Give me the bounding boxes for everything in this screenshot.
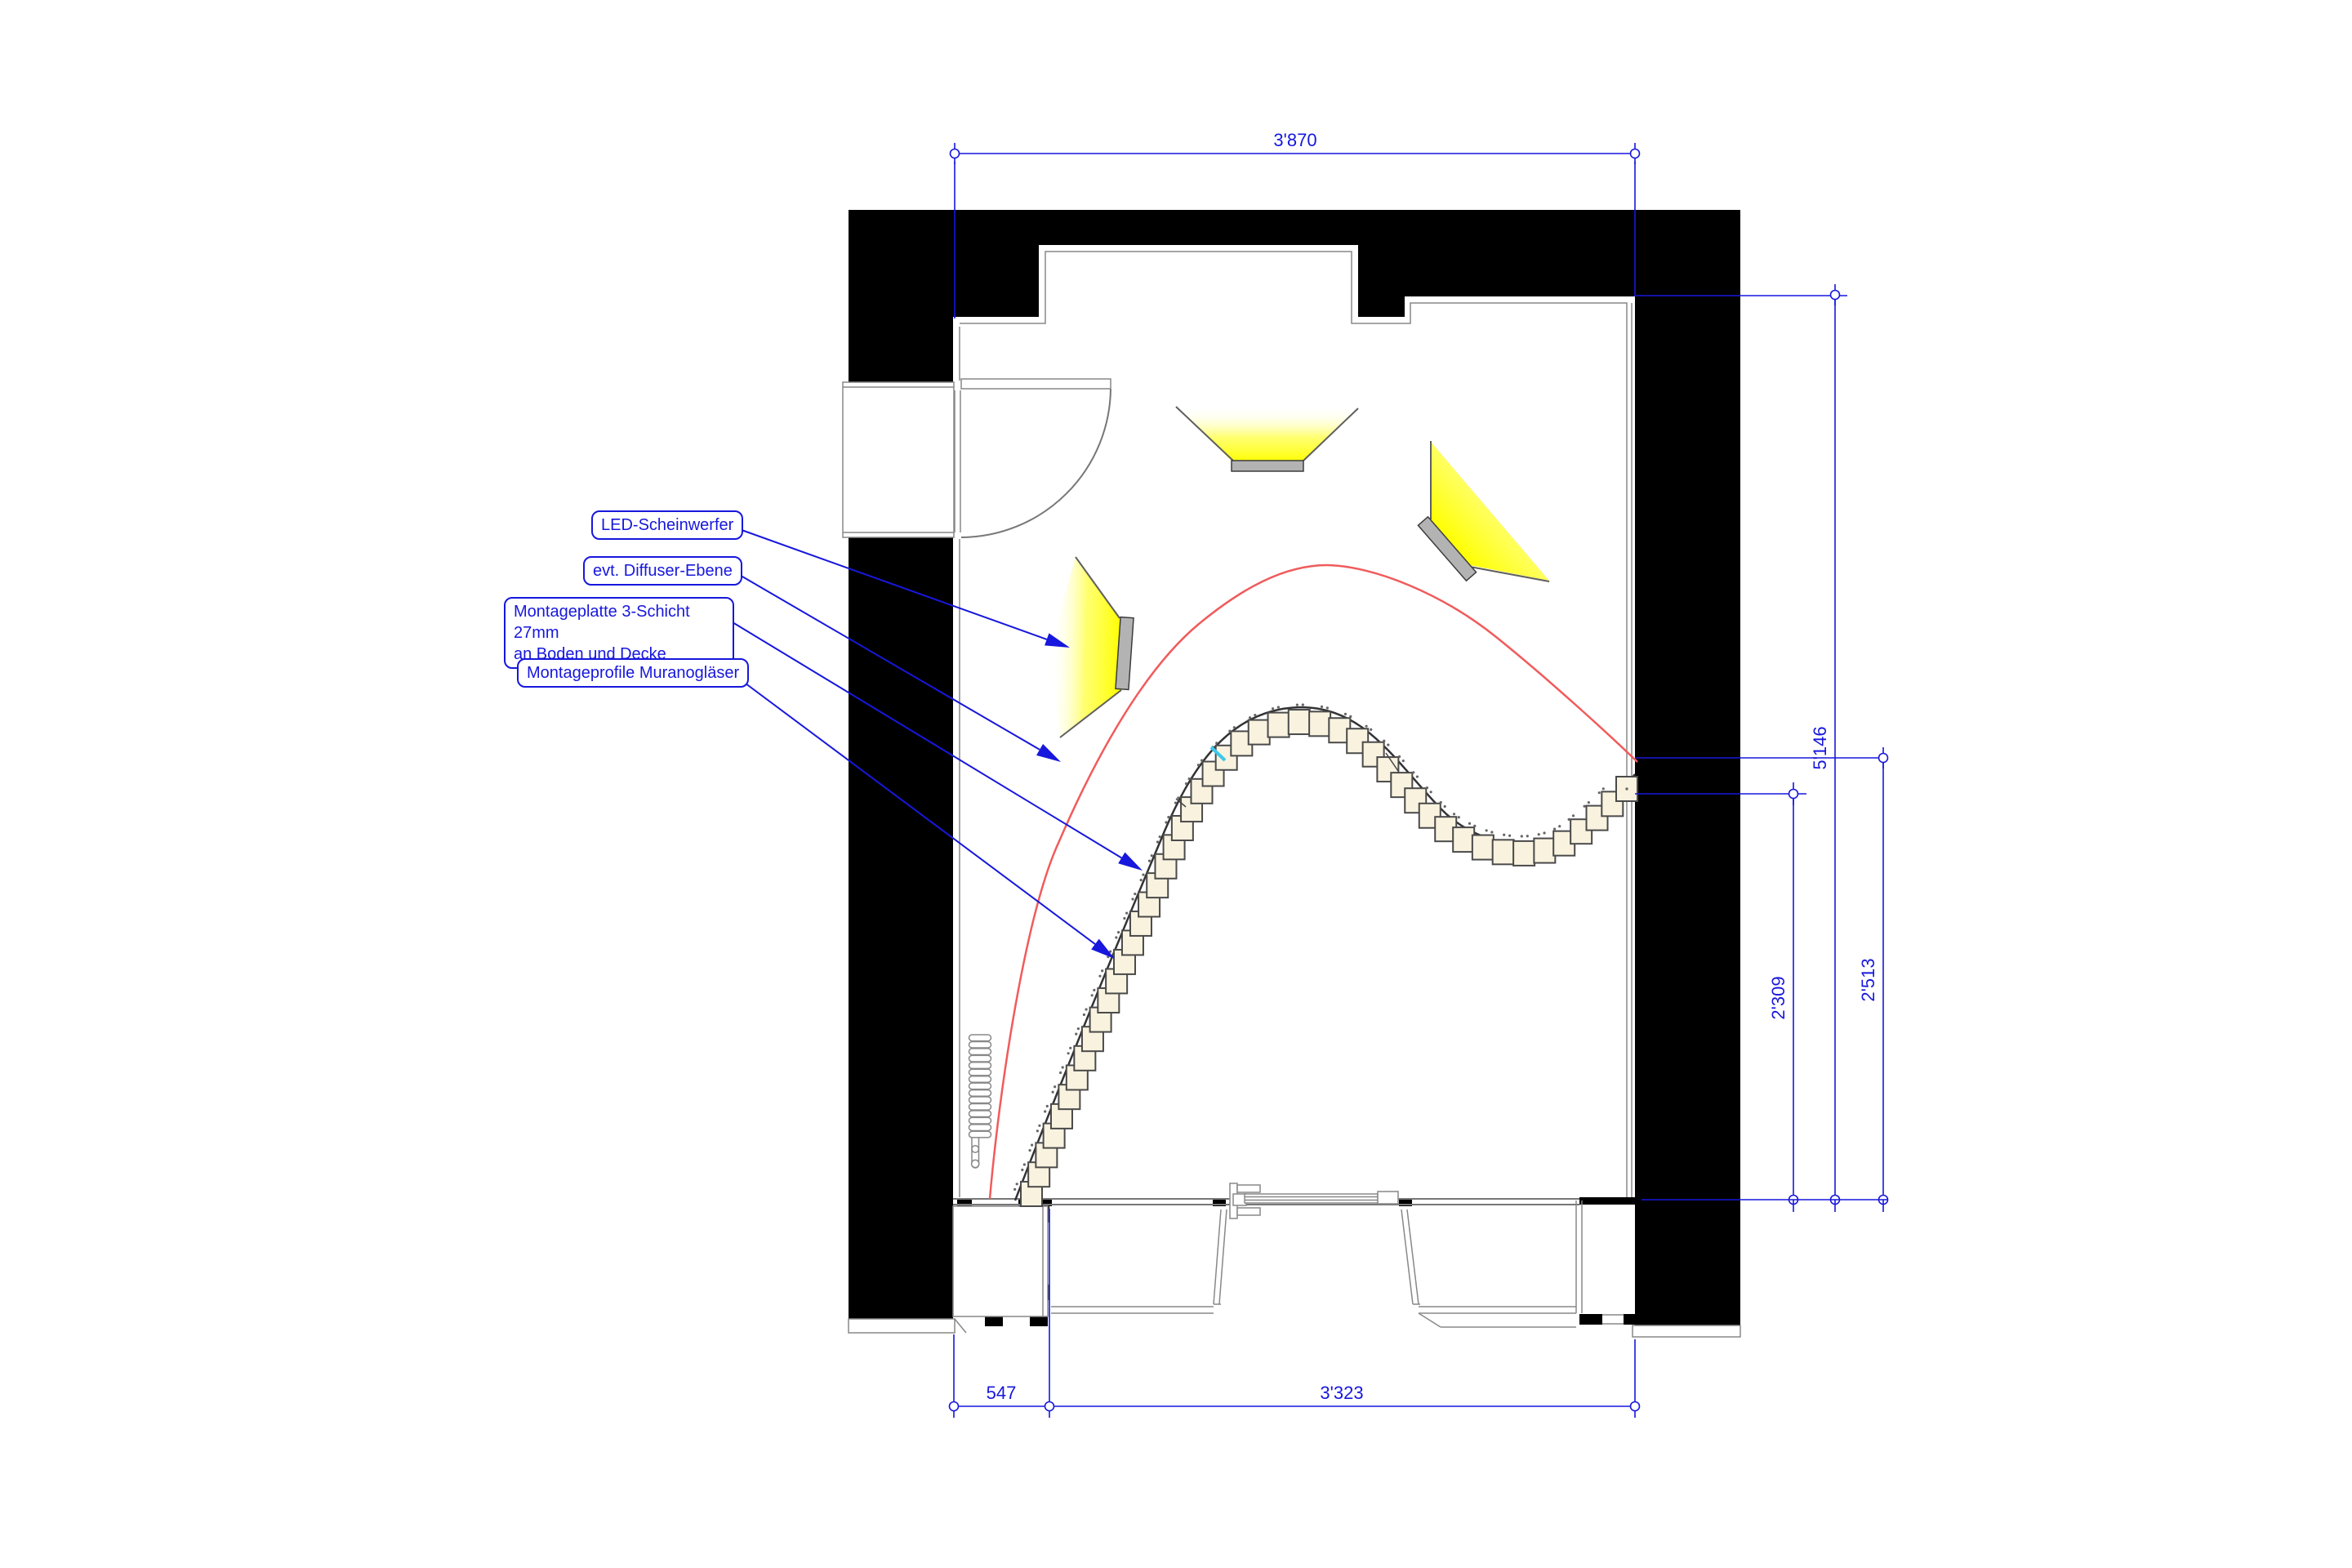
radiator-fin xyxy=(969,1125,991,1131)
label-montageplatte-line1: Montageplatte 3-Schicht 27mm xyxy=(514,603,690,642)
radiator-fin xyxy=(969,1069,991,1076)
radiator-fin xyxy=(969,1131,991,1138)
window-leaf-right xyxy=(1401,1209,1420,1304)
dim-right-total-value: 5'146 xyxy=(1810,726,1830,769)
spotlights xyxy=(1049,407,1549,737)
leader-montageprofile-arrowhead xyxy=(1091,939,1115,959)
door-leaf xyxy=(961,379,1111,389)
floor-plan-canvas: 3'870 5'146 2'513 2'309 xyxy=(0,0,2352,1568)
radiator xyxy=(969,1035,991,1168)
radiator-fin xyxy=(969,1035,991,1041)
label-diffuser-text: evt. Diffuser-Ebene xyxy=(593,562,733,580)
led-spotlight-left xyxy=(1049,557,1134,737)
radiator-fin xyxy=(969,1062,991,1069)
vestibule-box xyxy=(953,1206,1048,1316)
led-spotlight-right xyxy=(1418,441,1549,581)
radiator-fin xyxy=(969,1111,991,1117)
label-montageprofile: Montageprofile Muranogläser xyxy=(517,658,749,688)
leader-montageplatte-arrowhead xyxy=(1118,853,1143,871)
murano-glass-panel xyxy=(1513,841,1535,866)
dim-right-outer-value: 2'513 xyxy=(1858,958,1878,1001)
murano-glass-panel xyxy=(1534,839,1555,863)
leader-diffuser-ebene-arrowhead xyxy=(1036,744,1061,762)
radiator-fin xyxy=(969,1041,991,1048)
radiator-fin xyxy=(969,1104,991,1111)
murano-glass-panel xyxy=(1309,711,1330,736)
floor-plan-svg: 3'870 5'146 2'513 2'309 xyxy=(0,0,2352,1568)
murano-glass-panel xyxy=(1268,713,1290,737)
murano-glass-panel xyxy=(1249,720,1270,745)
label-diffuser-ebene: evt. Diffuser-Ebene xyxy=(583,556,742,586)
outer-band-right xyxy=(1633,1325,1740,1337)
radiator-fin xyxy=(969,1076,991,1083)
label-led-text: LED-Scheinwerfer xyxy=(601,516,733,534)
entrance-door xyxy=(843,379,1111,537)
sliding-door xyxy=(1230,1183,1398,1218)
murano-glass-panel xyxy=(1493,840,1514,864)
murano-glass-panel xyxy=(1472,835,1494,860)
label-montageprofile-text: Montageprofile Muranogläser xyxy=(527,664,739,682)
radiator-fin xyxy=(969,1090,991,1097)
dim-bottom-left-value: 547 xyxy=(987,1383,1017,1403)
storefront xyxy=(849,1183,1740,1337)
radiator-fin xyxy=(969,1097,991,1103)
dim-bottom-main-value: 3'323 xyxy=(1320,1383,1363,1403)
window-leaf-left xyxy=(1214,1209,1227,1304)
label-led-scheinwerfer: LED-Scheinwerfer xyxy=(591,510,743,540)
radiator-fin xyxy=(969,1117,991,1124)
door-swing-arc xyxy=(961,389,1111,537)
dim-right-inner-value: 2'309 xyxy=(1768,976,1788,1019)
murano-glass-panel xyxy=(1453,827,1474,852)
radiator-fin xyxy=(969,1055,991,1062)
dim-top-value: 3'870 xyxy=(1273,130,1316,150)
walls xyxy=(849,210,1740,1326)
radiator-fin xyxy=(969,1083,991,1089)
murano-glass-panel xyxy=(1289,710,1310,734)
led-spotlight-middle xyxy=(1176,407,1358,471)
outer-band-left xyxy=(849,1319,955,1333)
radiator-fin xyxy=(969,1049,991,1055)
